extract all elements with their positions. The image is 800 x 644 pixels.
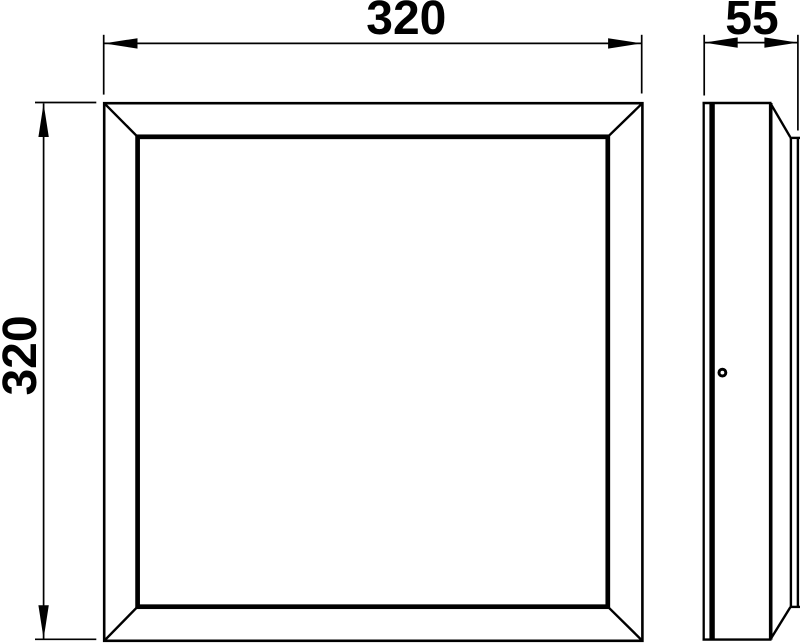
svg-text:55: 55 bbox=[725, 0, 778, 45]
svg-text:320: 320 bbox=[366, 0, 446, 45]
svg-text:320: 320 bbox=[0, 315, 47, 395]
